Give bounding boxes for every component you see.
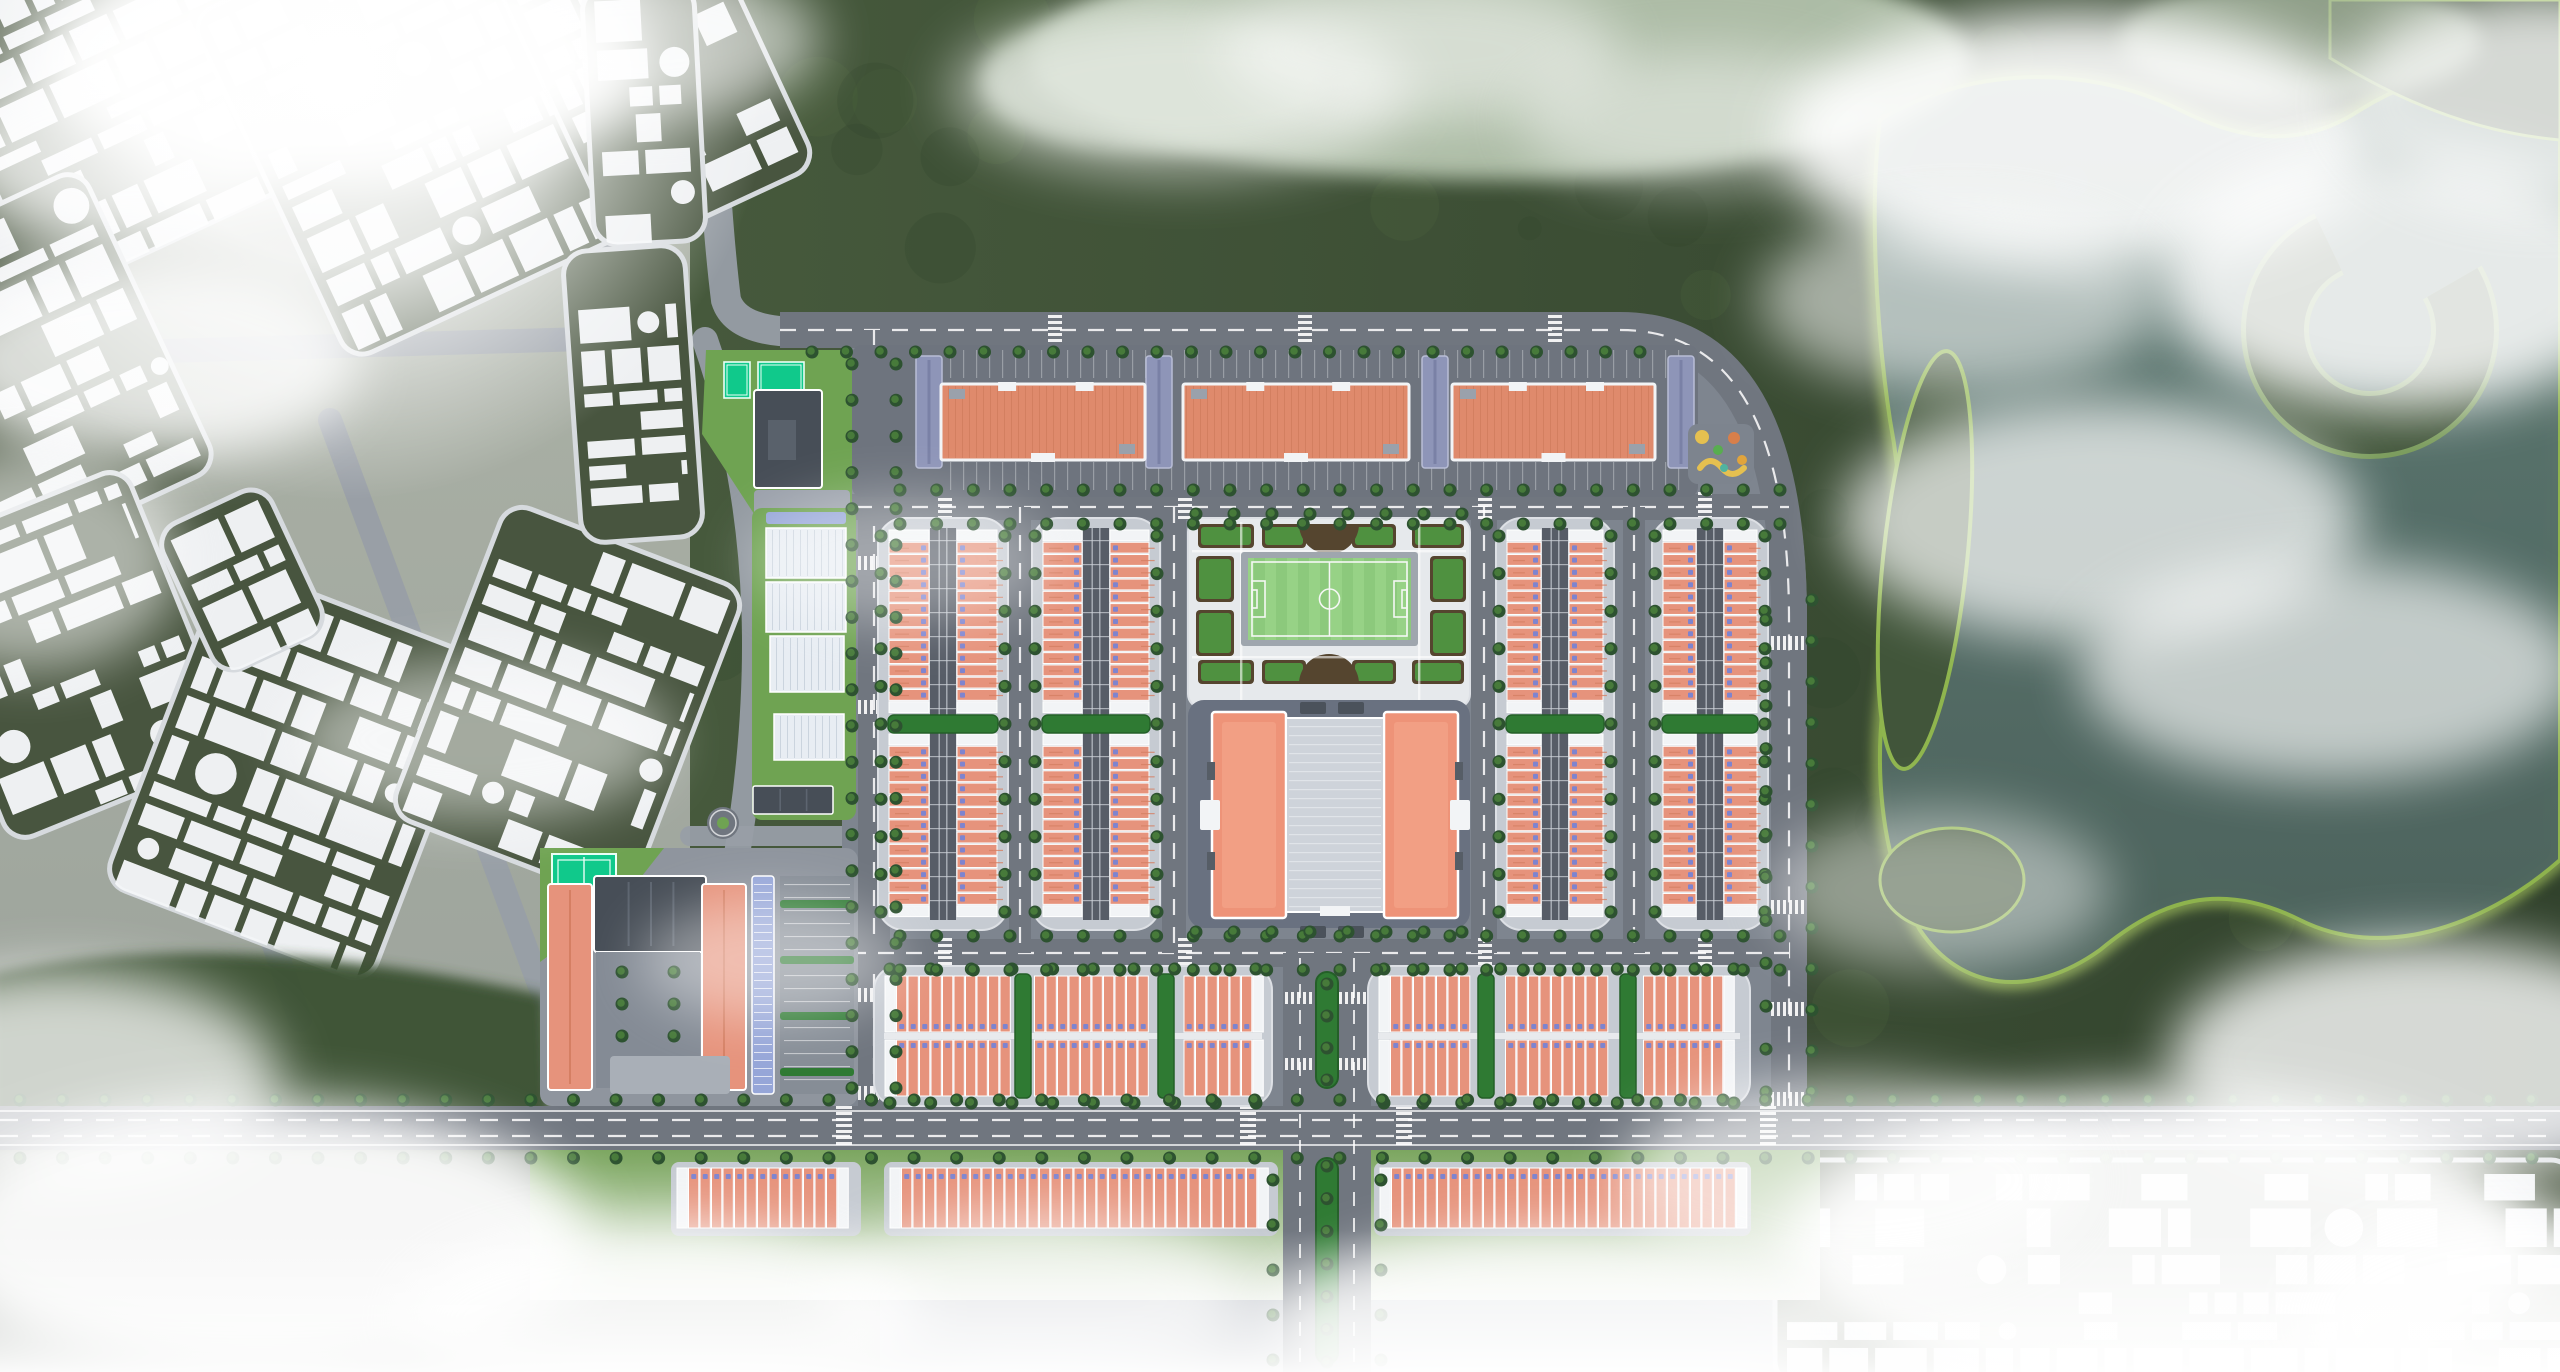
townhouse-roof xyxy=(1127,976,1137,1032)
roof-shade xyxy=(1513,683,1525,684)
crosswalk-stripe xyxy=(1351,992,1354,1004)
tree-icon xyxy=(1807,1005,1815,1013)
tree-icon xyxy=(1030,870,1038,878)
townhouse-skylight xyxy=(1688,811,1693,816)
tree-icon xyxy=(1532,347,1540,355)
townhouse-skylight xyxy=(1589,1043,1594,1048)
townhouse-skylight xyxy=(1601,1174,1606,1179)
townhouse-roof xyxy=(1242,976,1252,1032)
townhouse-skylight xyxy=(945,1024,950,1029)
townhouse-skylight xyxy=(1727,835,1732,840)
tree-icon xyxy=(891,721,899,729)
stall-line xyxy=(950,462,951,490)
tree-icon xyxy=(847,649,855,657)
alley-line xyxy=(1542,684,1568,685)
townhouse-skylight xyxy=(1521,1174,1526,1179)
roof-shade xyxy=(989,850,1003,851)
tree-icon xyxy=(1555,965,1563,973)
tree-icon xyxy=(1343,509,1351,517)
townhouse-skylight xyxy=(960,848,965,853)
crosswalk-stripe xyxy=(1801,636,1804,650)
stall-line xyxy=(1405,350,1406,378)
crosswalk-stripe xyxy=(1285,992,1288,1004)
townhouse-skylight xyxy=(1451,1043,1456,1048)
tree-icon xyxy=(1000,682,1008,690)
alley-line xyxy=(1542,804,1568,805)
tree-icon xyxy=(1665,965,1673,973)
townhouse-roof xyxy=(677,1168,687,1228)
tree-icon xyxy=(1807,759,1815,767)
tree-icon xyxy=(1606,870,1614,878)
roof-shade xyxy=(1141,776,1155,777)
stall-line xyxy=(1574,462,1575,490)
townhouse-skylight xyxy=(968,1024,973,1029)
tree-icon xyxy=(782,1095,790,1103)
townhouse-skylight xyxy=(1393,1043,1398,1048)
stall-line xyxy=(989,462,990,490)
roof-shade xyxy=(1669,813,1681,814)
townhouse-roof xyxy=(1724,906,1757,917)
roof-shade xyxy=(1669,585,1681,586)
stall-line xyxy=(1548,462,1549,490)
townhouse-skylight xyxy=(1688,570,1693,575)
roof-shade xyxy=(989,862,1003,863)
atrium-rib xyxy=(1289,780,1381,781)
crosswalk-stripe xyxy=(1048,321,1062,324)
roof-shade xyxy=(1513,670,1525,671)
townhouse-roof xyxy=(1663,906,1696,917)
tree-icon xyxy=(1189,485,1197,493)
townhouse-skylight xyxy=(1572,798,1577,803)
tree-icon xyxy=(1739,485,1747,493)
shed-line xyxy=(832,638,833,690)
roof-shade xyxy=(1749,683,1761,684)
tree-icon xyxy=(1322,1043,1330,1051)
tree-icon xyxy=(1592,519,1600,527)
tree-icon xyxy=(1381,927,1389,935)
roof-shade xyxy=(1513,560,1525,561)
roof-shade xyxy=(1669,658,1681,659)
alley-line xyxy=(1697,636,1723,637)
roof-shade xyxy=(1595,850,1607,851)
shed-line xyxy=(825,638,826,690)
atrium-rib xyxy=(1289,888,1381,889)
roof-shade xyxy=(1049,752,1063,753)
stall-line xyxy=(1509,462,1510,490)
townhouse-skylight xyxy=(1572,884,1577,889)
canopy-rib xyxy=(754,1036,772,1037)
shed-line xyxy=(790,638,791,690)
garden-bed-hedge xyxy=(1201,663,1251,681)
shed-line xyxy=(776,638,777,690)
roof-shade xyxy=(1141,850,1155,851)
tree-icon xyxy=(1152,757,1160,765)
townhouse-roof xyxy=(1043,906,1082,917)
tree-icon xyxy=(1702,519,1710,527)
townhouse-skylight xyxy=(1003,1043,1008,1048)
block-walkway xyxy=(1378,1033,1740,1039)
townhouse-skylight xyxy=(934,1043,939,1048)
shed-line xyxy=(836,716,837,758)
alley-line xyxy=(1083,684,1109,685)
crosswalk-stripe xyxy=(1783,1002,1786,1016)
canopy-rib xyxy=(754,1028,772,1029)
shed-line xyxy=(801,716,802,758)
tree-icon xyxy=(1267,927,1275,935)
tree-icon xyxy=(1207,1095,1215,1103)
tree-icon xyxy=(824,1153,832,1161)
townhouse-roof xyxy=(1506,976,1516,1032)
townhouse-roof xyxy=(1724,734,1757,745)
townhouse-skylight xyxy=(1688,594,1693,599)
canopy-rib xyxy=(754,1084,772,1085)
crosswalk-stripe xyxy=(1777,1002,1780,1016)
tree-icon xyxy=(1292,1095,1300,1103)
roof-shade xyxy=(1669,789,1681,790)
tree-icon xyxy=(1761,658,1769,666)
alley-line xyxy=(1697,588,1723,589)
wing-tab xyxy=(1455,762,1463,780)
townhouse-skylight xyxy=(1113,594,1118,599)
townhouse-skylight xyxy=(921,884,926,889)
crosswalk-stripe xyxy=(1548,327,1562,330)
block-hedge xyxy=(1478,974,1494,1098)
apartment-wing-ridge xyxy=(1434,360,1437,464)
townhouse-skylight xyxy=(818,1174,823,1179)
townhouse-skylight xyxy=(1572,619,1577,624)
tree-icon xyxy=(1761,1001,1769,1009)
townhouse-roof xyxy=(920,976,930,1032)
tree-icon xyxy=(782,1153,790,1161)
tree-icon xyxy=(952,1095,960,1103)
townhouse-skylight xyxy=(726,1174,731,1179)
wing-tab xyxy=(1455,852,1463,870)
garden-bed-hedge xyxy=(1199,559,1231,599)
townhouse-roof xyxy=(1529,976,1539,1032)
townhouse-skylight xyxy=(1533,656,1538,661)
townhouse-skylight xyxy=(1118,1024,1123,1029)
townhouse-skylight xyxy=(1555,1174,1560,1179)
townhouse-skylight xyxy=(1727,644,1732,649)
stall-line xyxy=(1028,462,1029,490)
roof-shade xyxy=(895,634,909,635)
roof-shade xyxy=(1049,658,1063,659)
townhouse-skylight xyxy=(1692,1024,1697,1029)
townhouse-skylight xyxy=(1688,884,1693,889)
stall-line xyxy=(1002,350,1003,378)
townhouse-skylight xyxy=(1074,762,1079,767)
townhouse-skylight xyxy=(1727,774,1732,779)
shed-line xyxy=(797,638,798,690)
tree-icon xyxy=(891,359,899,367)
townhouse-skylight xyxy=(1589,1024,1594,1029)
tree-icon xyxy=(1807,1046,1815,1054)
townhouse-skylight xyxy=(916,1174,921,1179)
garden-bed-hedge xyxy=(1199,613,1231,653)
roof-shade xyxy=(1513,764,1525,765)
tree-icon xyxy=(1000,644,1008,652)
townhouse-skylight xyxy=(968,1043,973,1048)
crosswalk-stripe xyxy=(1548,321,1562,324)
roundabout-island xyxy=(717,817,729,829)
townhouse-skylight xyxy=(1727,607,1732,612)
tree-icon xyxy=(1497,347,1505,355)
tree-icon xyxy=(1494,569,1502,577)
roof-shade xyxy=(1669,838,1681,839)
tree-icon xyxy=(1152,794,1160,802)
sports-court xyxy=(724,362,750,398)
townhouse-skylight xyxy=(921,897,926,902)
townhouse-skylight xyxy=(1533,860,1538,865)
forest-texture xyxy=(831,124,882,175)
townhouse-skylight xyxy=(1113,823,1118,828)
tree-icon xyxy=(1322,979,1330,987)
cloud xyxy=(1770,810,2110,970)
townhouse-roof xyxy=(1219,976,1229,1032)
townhouse-skylight xyxy=(1572,774,1577,779)
tree-icon xyxy=(1118,347,1126,355)
roof-ridge xyxy=(779,789,781,811)
tree-icon xyxy=(1807,677,1815,685)
tree-icon xyxy=(1262,965,1270,973)
crosswalk-stripe xyxy=(1298,315,1312,318)
townhouse-skylight xyxy=(1688,545,1693,550)
townhouse-skylight xyxy=(1233,1043,1238,1048)
roof-ridge xyxy=(806,789,808,811)
townhouse-skylight xyxy=(1572,872,1577,877)
townhouse-skylight xyxy=(1226,1174,1231,1179)
townhouse-skylight xyxy=(1572,545,1577,550)
central-plaza xyxy=(1188,700,1470,938)
tree-icon xyxy=(1606,569,1614,577)
roof-shade xyxy=(1669,646,1681,647)
tree-icon xyxy=(1322,1011,1330,1019)
tree-icon xyxy=(1170,964,1178,972)
tree-icon xyxy=(1335,519,1343,527)
townhouse-skylight xyxy=(1727,762,1732,767)
alley-line xyxy=(1542,828,1568,829)
tree-icon xyxy=(1463,347,1471,355)
roof-shade xyxy=(1049,597,1063,598)
tree-icon xyxy=(1292,1153,1300,1161)
townhouse-skylight xyxy=(1113,693,1118,698)
roof-shade xyxy=(1513,597,1525,598)
tree-icon xyxy=(1152,682,1160,690)
townhouse-skylight xyxy=(1533,786,1538,791)
townhouse-skylight xyxy=(1543,1043,1548,1048)
tree-icon xyxy=(1381,509,1389,517)
canopy-rib xyxy=(754,1052,772,1053)
tree-icon xyxy=(1606,832,1614,840)
crosswalk-stripe xyxy=(1478,510,1492,513)
tree-icon xyxy=(1592,931,1600,939)
townhouse-skylight xyxy=(1074,835,1079,840)
tree-icon xyxy=(1650,794,1658,802)
roof-shade xyxy=(1595,825,1607,826)
tree-icon xyxy=(895,485,903,493)
townhouse-roof xyxy=(1092,1040,1102,1096)
roof-shade xyxy=(1513,752,1525,753)
stall-line xyxy=(1080,350,1081,378)
townhouse-skylight xyxy=(1095,1024,1100,1029)
tree-icon xyxy=(1165,1095,1173,1103)
tree-icon xyxy=(1606,757,1614,765)
townhouse-skylight xyxy=(960,835,965,840)
rooftop-unit xyxy=(1119,444,1135,454)
townhouse-skylight xyxy=(1238,1174,1243,1179)
townhouse-roof xyxy=(1540,976,1550,1032)
roof-shade xyxy=(895,850,909,851)
alley-line xyxy=(930,876,956,877)
townhouse-skylight xyxy=(1074,860,1079,865)
townhouse-skylight xyxy=(1452,1174,1457,1179)
tree-icon xyxy=(1030,719,1038,727)
tree-icon xyxy=(1651,1098,1659,1106)
canopy-rib xyxy=(754,1060,772,1061)
tree-icon xyxy=(441,1095,449,1103)
garden-bed-hedge xyxy=(1415,663,1461,681)
townhouse-roof xyxy=(1184,1040,1194,1096)
tree-icon xyxy=(1420,1095,1428,1103)
garden-path-line xyxy=(1418,522,1420,704)
tree-icon xyxy=(1000,832,1008,840)
townhouse-roof xyxy=(1069,1040,1079,1096)
tree-icon xyxy=(1115,485,1123,493)
alley-line xyxy=(1697,780,1723,781)
tree-icon xyxy=(1030,907,1038,915)
tree-icon xyxy=(611,1153,619,1161)
tree-icon xyxy=(1494,682,1502,690)
roof-shade xyxy=(1669,548,1681,549)
tree-icon xyxy=(1409,965,1417,973)
tree-icon xyxy=(1690,1098,1698,1106)
apartment-slab xyxy=(1183,382,1409,462)
tree-icon xyxy=(1606,682,1614,690)
roof-shade xyxy=(1049,560,1063,561)
tree-icon xyxy=(739,1095,747,1103)
crosswalk-stripe xyxy=(1178,504,1192,507)
tree-icon xyxy=(1007,1098,1015,1106)
tree-icon xyxy=(1299,965,1307,973)
roof-shade xyxy=(1595,887,1607,888)
tree-icon xyxy=(847,866,855,874)
shed-line xyxy=(804,638,805,690)
tree-icon xyxy=(967,1098,975,1106)
townhouse-roof xyxy=(1598,976,1608,1032)
townhouse-roof xyxy=(1043,702,1082,713)
alley-line xyxy=(1697,804,1723,805)
tree-icon xyxy=(1482,519,1490,527)
tree-icon xyxy=(1555,519,1563,527)
townhouse-skylight xyxy=(1113,570,1118,575)
playground-toy xyxy=(1695,430,1709,444)
townhouse-skylight xyxy=(1475,1174,1480,1179)
roof-shade xyxy=(1749,813,1761,814)
tree-icon xyxy=(847,902,855,910)
tree-icon xyxy=(926,1098,934,1106)
townhouse-roof xyxy=(1391,1040,1401,1096)
crosswalk-stripe xyxy=(1339,992,1342,1004)
roof-shade xyxy=(1669,850,1681,851)
tree-icon xyxy=(1372,965,1380,973)
townhouse-roof xyxy=(957,734,997,745)
roof-shade xyxy=(1595,670,1607,671)
crosswalk-stripe xyxy=(1396,1130,1412,1133)
townhouse-roof xyxy=(1253,976,1263,1032)
roof-shade xyxy=(1749,850,1761,851)
townhouse-skylight xyxy=(1688,558,1693,563)
tree-icon xyxy=(1037,1095,1045,1103)
townhouse-roof xyxy=(1379,1040,1389,1096)
tree-icon xyxy=(994,1095,1002,1103)
tree-icon xyxy=(1591,1095,1599,1103)
townhouse-skylight xyxy=(921,644,926,649)
tree-icon xyxy=(1761,701,1769,709)
tree-icon xyxy=(1115,931,1123,939)
townhouse-skylight xyxy=(1074,811,1079,816)
rooftop-unit xyxy=(1629,444,1645,454)
townhouse-skylight xyxy=(899,1024,904,1029)
townhouse-roof xyxy=(1207,976,1217,1032)
roof-shade xyxy=(989,634,1003,635)
townhouse-skylight xyxy=(1074,594,1079,599)
alley-line xyxy=(1083,612,1109,613)
tree-icon xyxy=(1083,347,1091,355)
tree-icon xyxy=(891,468,899,476)
townhouse-skylight xyxy=(1074,774,1079,779)
townhouse-skylight xyxy=(1727,897,1732,902)
townhouse-skylight xyxy=(960,811,965,816)
townhouse-skylight xyxy=(1704,1043,1709,1048)
townhouse-skylight xyxy=(1462,1024,1467,1029)
crosswalk-stripe xyxy=(1285,1058,1288,1070)
townhouse-roof xyxy=(1258,1168,1268,1228)
crosswalk-stripe xyxy=(1357,992,1360,1004)
townhouse-roof xyxy=(1507,734,1541,745)
roof-shade xyxy=(1749,560,1761,561)
townhouse-skylight xyxy=(911,1043,916,1048)
townhouse-skylight xyxy=(1727,749,1732,754)
roof-shade xyxy=(1049,838,1063,839)
stall-line xyxy=(1236,350,1237,378)
tree-icon xyxy=(1702,965,1710,973)
townhouse-roof xyxy=(1110,530,1149,541)
townhouse-skylight xyxy=(1688,835,1693,840)
roof-shade xyxy=(1141,813,1155,814)
tree-icon xyxy=(1548,1095,1556,1103)
crosswalk-stripe xyxy=(1240,1118,1256,1121)
townhouse-skylight xyxy=(1688,860,1693,865)
townhouse-skylight xyxy=(1405,1043,1410,1048)
townhouse-roof xyxy=(1598,1040,1608,1096)
tree-icon xyxy=(842,347,850,355)
townhouse-skylight xyxy=(960,668,965,673)
tree-icon xyxy=(1419,509,1427,517)
row-house-block xyxy=(1029,518,1164,930)
tree-icon xyxy=(1030,682,1038,690)
stall-line xyxy=(1652,462,1653,490)
townhouse-skylight xyxy=(1688,607,1693,612)
townhouse-skylight xyxy=(1074,749,1079,754)
townhouse-roof xyxy=(908,976,918,1032)
townhouse-skylight xyxy=(1572,897,1577,902)
tree-icon xyxy=(891,1011,899,1019)
crosswalk-stripe xyxy=(1548,339,1562,342)
townhouse-skylight xyxy=(829,1174,834,1179)
tree-icon xyxy=(876,832,884,840)
roof-shade xyxy=(1749,825,1761,826)
tree-icon xyxy=(1494,907,1502,915)
